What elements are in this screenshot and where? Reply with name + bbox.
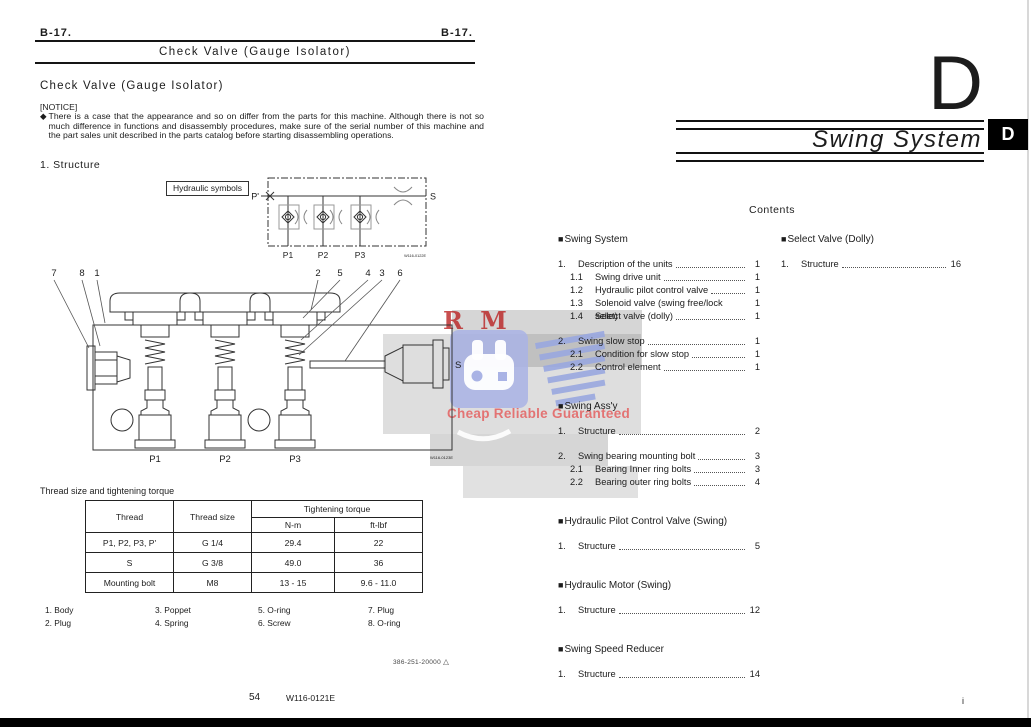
column-header-torque: Tightening torque	[252, 501, 423, 518]
legend-item: 1. Body	[45, 604, 155, 617]
toc-entry-number: 2.2	[570, 476, 595, 489]
table-header-row: Thread Thread size Tightening torque	[86, 501, 423, 518]
toc-entry-label: Structure	[578, 540, 616, 553]
scan-bottom-bar	[0, 718, 1031, 727]
callout-6: 6	[397, 268, 402, 279]
section-title: Check Valve (Gauge Isolator)	[40, 80, 224, 92]
toc-leader-dots	[698, 450, 745, 460]
toc-entry: 1.Structure12	[558, 604, 760, 617]
chapter-rule-bottom	[676, 152, 984, 162]
parts-legend: 1. Body2. Plug3. Poppet4. Spring5. O-rin…	[45, 604, 468, 630]
toc-entry-page: 1	[748, 335, 760, 348]
hydraulic-symbols-schematic: P' S P1 P2 P3 W116-0122E	[248, 175, 443, 263]
toc-entry-page: 2	[748, 425, 760, 438]
left-page-number: 54	[249, 692, 260, 703]
toc-section: ■Swing System1.Description of the units1…	[558, 233, 760, 374]
toc-entry-number: 2.	[558, 450, 578, 463]
valve-cartridges	[110, 293, 340, 448]
callout-8: 8	[79, 268, 84, 279]
toc-leader-dots	[676, 258, 745, 268]
toc-entry-page: 1	[748, 271, 760, 284]
toc-entry-label: Condition for slow stop	[595, 348, 689, 361]
toc-entry: 1.Description of the units1	[558, 258, 760, 271]
document-number: 386-251-20000 △	[393, 657, 449, 666]
toc-entry-page: 4	[748, 476, 760, 489]
toc-leader-dots	[842, 258, 946, 268]
hydraulic-symbols-label: Hydraulic symbols	[166, 181, 249, 196]
valve-body	[93, 325, 452, 450]
toc-entry: 1.1Swing drive unit1	[558, 271, 760, 284]
toc-section-title: ■Swing Ass'y	[558, 400, 760, 413]
legend-item: 4. Spring	[155, 617, 258, 630]
toc-entry: 1.Structure16	[781, 258, 961, 271]
callout-numbers: 7 8 1 2 5 4 3 6	[51, 268, 402, 279]
notice-paragraph: ◆ There is a case that the appearance an…	[40, 112, 484, 141]
toc-entry-label: Structure	[578, 668, 616, 681]
port-label-p-prime: P'	[251, 192, 259, 202]
port-label-p2: P2	[219, 454, 231, 465]
check-valve-branches	[279, 196, 379, 246]
toc-section-title-text: Swing Speed Reducer	[564, 644, 664, 655]
contents-title: Contents	[560, 204, 984, 216]
toc-section: ■Select Valve (Dolly)1.Structure16	[781, 233, 961, 271]
diamond-bullet-icon: ◆	[40, 112, 47, 141]
callout-3: 3	[379, 268, 384, 279]
toc-section-title: ■Select Valve (Dolly)	[781, 233, 961, 246]
figure-number: W116-0122E	[404, 254, 426, 258]
document-number-text: 386-251-20000	[393, 659, 441, 666]
chapter-title: Swing System	[676, 126, 982, 154]
right-screw-plug	[310, 340, 449, 388]
toc-entry-number: 1.	[558, 258, 578, 271]
toc-leader-dots	[619, 604, 745, 614]
section-square-icon: ■	[781, 234, 786, 244]
table-cell: 49.0	[252, 553, 335, 573]
toc-entry-page: 1	[748, 297, 760, 310]
toc-section: ■Swing Speed Reducer1.Structure14	[558, 643, 760, 681]
toc-entry: 2.1Bearing Inner ring bolts3	[558, 463, 760, 476]
port-label-s: S	[455, 360, 461, 371]
toc-leader-dots	[694, 476, 745, 486]
toc-entry-number: 1.	[781, 258, 801, 271]
toc-entry: 1.4Select valve (dolly)1	[558, 310, 760, 323]
callout-4: 4	[365, 268, 370, 279]
toc-entry: 2.1Condition for slow stop1	[558, 348, 760, 361]
toc-section: ■Hydraulic Motor (Swing)1.Structure12	[558, 579, 760, 617]
structure-heading: 1. Structure	[40, 159, 100, 171]
toc-section: ■Hydraulic Pilot Control Valve (Swing)1.…	[558, 515, 760, 553]
table-cell: 29.4	[252, 533, 335, 553]
port-label-s: S	[430, 192, 436, 202]
column-header-nm: N-m	[252, 518, 335, 533]
legend-item: 3. Poppet	[155, 604, 258, 617]
toc-entry-label: Control element	[595, 361, 661, 374]
toc-entry-label: Select valve (dolly)	[595, 310, 673, 323]
toc-entry-number: 1.	[558, 540, 578, 553]
port-label-p3: P3	[289, 454, 301, 465]
header-rule	[35, 40, 475, 42]
left-header-code: B-17.	[40, 27, 72, 39]
scanned-manual-page: R M Cheap Reliable Guaranteed B-17.	[0, 0, 1031, 727]
toc-section-title-text: Swing System	[564, 234, 627, 245]
toc-entry: 2.Swing slow stop1	[558, 335, 760, 348]
toc-entry: 1.Structure2	[558, 425, 760, 438]
toc-right-column: ■Select Valve (Dolly)1.Structure16	[781, 233, 961, 271]
toc-entry-label: Structure	[578, 604, 616, 617]
toc-entry: 1.3Solenoid valve (swing free/lock selet…	[558, 297, 760, 310]
schematic-envelope	[268, 178, 426, 246]
toc-entry-page: 1	[748, 310, 760, 323]
check-valve-symbol	[351, 196, 379, 246]
check-valve-symbol	[314, 196, 342, 246]
section-square-icon: ■	[558, 644, 563, 654]
section-square-icon: ■	[558, 234, 563, 244]
check-valve-symbol	[279, 196, 307, 246]
callout-2: 2	[315, 268, 320, 279]
legend-column: 3. Poppet4. Spring	[155, 604, 258, 630]
table-cell: G 1/4	[174, 533, 252, 553]
chapter-letter: D	[893, 46, 983, 122]
port-label-p3: P3	[355, 250, 366, 260]
table-cell: 13 - 15	[252, 573, 335, 593]
table-cell: 9.6 - 11.0	[335, 573, 423, 593]
right-page-number: i	[962, 696, 964, 706]
callout-leader-lines	[54, 280, 400, 361]
toc-leader-dots	[711, 284, 745, 294]
legend-item: 7. Plug	[368, 604, 468, 617]
legend-item: 8. O-ring	[368, 617, 468, 630]
page-title-bar: Check Valve (Gauge Isolator)	[35, 46, 475, 58]
toc-entry-number: 1.4	[570, 310, 595, 323]
toc-leader-dots	[694, 463, 745, 473]
toc-leader-dots	[619, 540, 745, 550]
toc-entry-label: Bearing Inner ring bolts	[595, 463, 691, 476]
table-cell: S	[86, 553, 174, 573]
toc-entry-label: Solenoid valve (swing free/lock selet)	[595, 297, 742, 310]
port-label-p1: P1	[149, 454, 161, 465]
toc-entry-page: 1	[748, 348, 760, 361]
toc-entry-number: 1.3	[570, 297, 595, 310]
toc-entry-number: 2.1	[570, 348, 595, 361]
toc-entry: 1.Structure14	[558, 668, 760, 681]
table-row: Mounting boltM813 - 159.6 - 11.0	[86, 573, 423, 593]
toc-entry-page: 3	[748, 463, 760, 476]
toc-entry-number: 2.1	[570, 463, 595, 476]
toc-leader-dots	[676, 310, 745, 320]
toc-entry-label: Description of the units	[578, 258, 673, 271]
table-caption: Thread size and tightening torque	[40, 486, 174, 496]
toc-entry: 1.Structure5	[558, 540, 760, 553]
table-cell: M8	[174, 573, 252, 593]
table-cell: Mounting bolt	[86, 573, 174, 593]
table-cell: 36	[335, 553, 423, 573]
toc-entry-number: 1.1	[570, 271, 595, 284]
section-square-icon: ■	[558, 401, 563, 411]
notice-text: There is a case that the appearance and …	[49, 112, 484, 141]
section-square-icon: ■	[558, 516, 563, 526]
watermark-swoosh	[458, 431, 510, 439]
toc-entry-label: Swing bearing mounting bolt	[578, 450, 695, 463]
toc-entry-page: 12	[748, 604, 760, 617]
table-row: SG 3/849.036	[86, 553, 423, 573]
toc-entry-label: Hydraulic pilot control valve	[595, 284, 708, 297]
toc-entry-label: Swing slow stop	[578, 335, 645, 348]
toc-section-title: ■Hydraulic Pilot Control Valve (Swing)	[558, 515, 760, 528]
legend-column: 5. O-ring6. Screw	[258, 604, 368, 630]
toc-left-column: ■Swing System1.Description of the units1…	[558, 233, 760, 681]
legend-item: 5. O-ring	[258, 604, 368, 617]
toc-section: ■Swing Ass'y1.Structure22.Swing bearing …	[558, 400, 760, 489]
toc-entry-number: 1.	[558, 604, 578, 617]
toc-entry-page: 3	[748, 450, 760, 463]
toc-leader-dots	[664, 271, 745, 281]
toc-entry: 1.2Hydraulic pilot control valve1	[558, 284, 760, 297]
figure-number: W116-0123E	[430, 455, 453, 460]
section-square-icon: ■	[558, 580, 563, 590]
toc-leader-dots	[648, 335, 745, 345]
toc-entry-label: Bearing outer ring bolts	[595, 476, 691, 489]
toc-section-title-text: Hydraulic Motor (Swing)	[564, 580, 671, 591]
toc-entry-number: 1.2	[570, 284, 595, 297]
toc-section-title-text: Hydraulic Pilot Control Valve (Swing)	[564, 516, 727, 527]
toc-leader-dots	[692, 348, 745, 358]
toc-entry-page: 14	[748, 668, 760, 681]
legend-column: 1. Body2. Plug	[45, 604, 155, 630]
toc-entry-number: 1.	[558, 668, 578, 681]
port-label-p1: P1	[283, 250, 294, 260]
table-cell: P1, P2, P3, P'	[86, 533, 174, 553]
toc-section-title-text: Select Valve (Dolly)	[787, 234, 874, 245]
toc-entry-label: Swing drive unit	[595, 271, 661, 284]
callout-5: 5	[337, 268, 342, 279]
toc-section-title-text: Swing Ass'y	[564, 401, 617, 412]
toc-entry-page: 5	[748, 540, 760, 553]
toc-entry-label: Structure	[801, 258, 839, 271]
toc-entry-page: 1	[748, 284, 760, 297]
toc-entry-number: 1.	[558, 425, 578, 438]
toc-section-title: ■Swing Speed Reducer	[558, 643, 760, 656]
toc-leader-dots	[664, 361, 745, 371]
table-cell: 22	[335, 533, 423, 553]
column-header-thread-size: Thread size	[174, 501, 252, 533]
right-header-code: B-17.	[441, 27, 473, 39]
legend-column: 7. Plug8. O-ring	[368, 604, 468, 630]
toc-entry-number: 2.2	[570, 361, 595, 374]
column-header-ftlbf: ft-lbf	[335, 518, 423, 533]
port-label-p2: P2	[318, 250, 329, 260]
toc-entry: 2.2Control element1	[558, 361, 760, 374]
chapter-tab: D	[988, 119, 1028, 150]
toc-entry-page: 16	[949, 258, 961, 271]
warning-triangle-icon: △	[443, 657, 449, 666]
callout-7: 7	[51, 268, 56, 279]
toc-entry: 2.Swing bearing mounting bolt3	[558, 450, 760, 463]
torque-table: Thread Thread size Tightening torque N-m…	[85, 500, 423, 593]
toc-section-title: ■Hydraulic Motor (Swing)	[558, 579, 760, 592]
callout-1: 1	[94, 268, 99, 279]
structure-diagram: 7 8 1 2 5 4 3 6 P1 P2 P3 S W116-0123E	[45, 260, 465, 475]
table-cell: G 3/8	[174, 553, 252, 573]
table-row: P1, P2, P3, P'G 1/429.422	[86, 533, 423, 553]
toc-section-title: ■Swing System	[558, 233, 760, 246]
toc-entry-page: 1	[748, 258, 760, 271]
toc-entry-label: Structure	[578, 425, 616, 438]
title-underline	[35, 62, 475, 64]
manual-code: W116-0121E	[286, 693, 335, 703]
legend-item: 6. Screw	[258, 617, 368, 630]
toc-entry: 2.2Bearing outer ring bolts4	[558, 476, 760, 489]
legend-item: 2. Plug	[45, 617, 155, 630]
toc-leader-dots	[619, 425, 745, 435]
column-header-thread: Thread	[86, 501, 174, 533]
toc-entry-page: 1	[748, 361, 760, 374]
toc-leader-dots	[619, 668, 745, 678]
toc-entry-number: 2.	[558, 335, 578, 348]
